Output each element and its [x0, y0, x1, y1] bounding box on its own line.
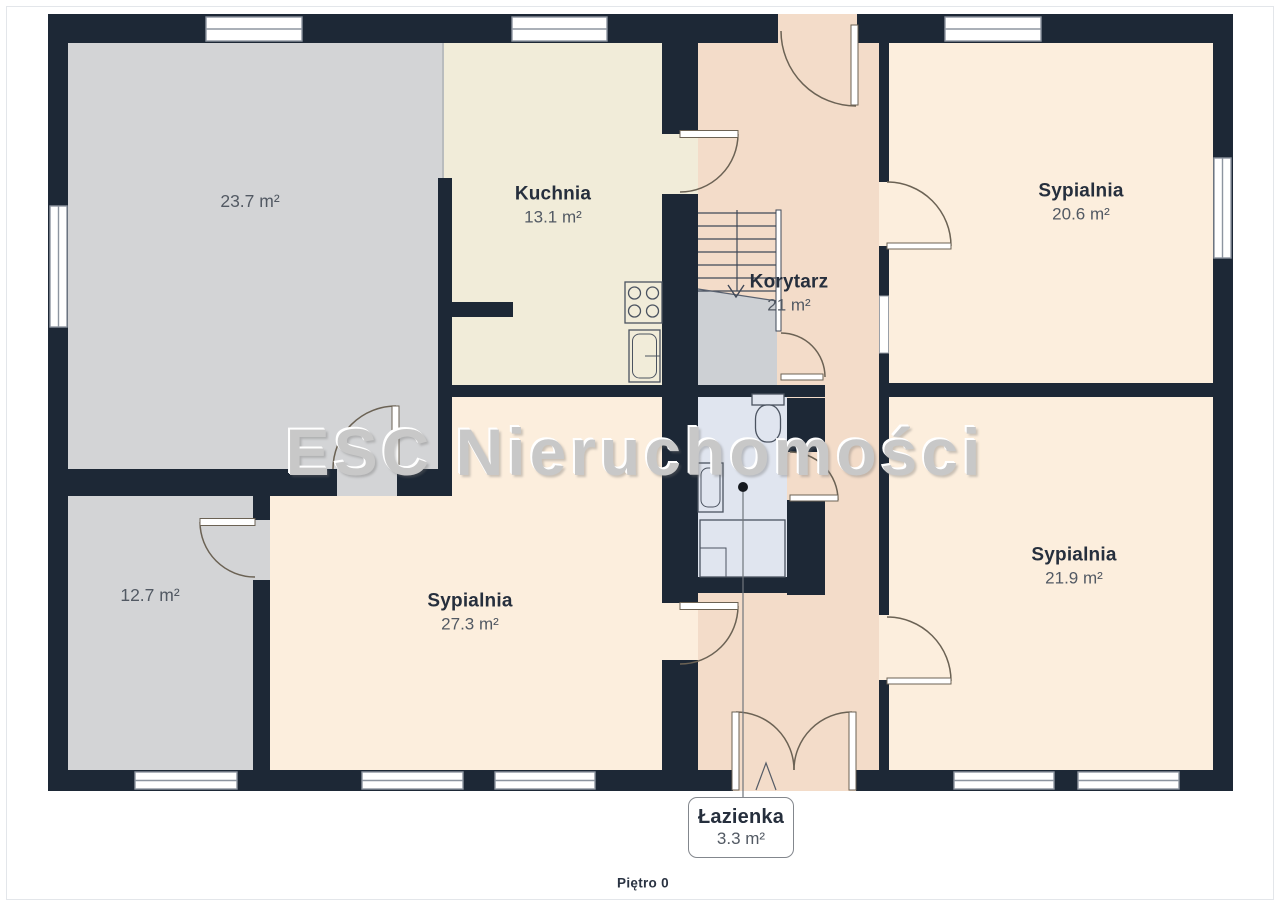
opening-bedroom-tr-door — [879, 182, 889, 246]
room-name: Kuchnia — [515, 183, 591, 207]
wall-corridor-left-1 — [662, 43, 698, 134]
window-icon — [1078, 772, 1179, 789]
opening-bedroom-left-door — [662, 603, 698, 660]
window-icon — [206, 17, 302, 41]
floor-room-gray-small — [68, 496, 253, 770]
floors — [68, 43, 1213, 770]
kitchen-sink-icon — [629, 330, 660, 382]
opening-entry-top — [778, 14, 857, 43]
room-area: 20.6 m² — [1038, 203, 1123, 224]
opening-entry-bottom — [733, 770, 856, 791]
wall-corridor-left-2 — [662, 194, 698, 603]
wall-niche — [880, 296, 889, 353]
window-icon — [945, 17, 1041, 41]
room-area: 23.7 m² — [220, 191, 279, 211]
window-icon — [495, 772, 595, 789]
floor-living-gray — [68, 43, 443, 469]
room-area: 13.1 m² — [515, 206, 591, 227]
room-label-bedroom-left: Sypialnia 27.3 m² — [427, 590, 512, 635]
room-area: 12.7 m² — [120, 585, 179, 605]
room-label-living-gray: 23.7 m² — [220, 191, 279, 213]
floor-label: Piętro 0 — [617, 876, 669, 891]
window-icon — [135, 772, 237, 789]
wall-corridor-left-3 — [662, 660, 698, 770]
window-icon — [512, 17, 607, 41]
wall-corridor-right-1 — [879, 43, 889, 182]
wall-corridor-right-4 — [879, 680, 889, 770]
wall-exterior-right — [1213, 14, 1233, 791]
window-icon — [954, 772, 1054, 789]
room-label-bedroom-bottom-right: Sypialnia 21.9 m² — [1031, 544, 1116, 589]
bathroom-callout: Łazienka 3.3 m² — [688, 797, 794, 858]
room-name: Korytarz — [750, 271, 829, 295]
watermark: ESC Nieruchomości — [286, 414, 985, 490]
room-label-corridor: Korytarz 21 m² — [750, 271, 829, 316]
window-icon — [1214, 158, 1231, 258]
window-icon — [362, 772, 463, 789]
stove-icon — [625, 282, 662, 323]
window-icon — [50, 206, 67, 327]
opening-kitchen-door — [662, 134, 698, 194]
room-label-bedroom-top-right: Sypialnia 20.6 m² — [1038, 180, 1123, 225]
room-area: 3.3 m² — [717, 829, 765, 849]
room-label-gray-small: 12.7 m² — [120, 585, 179, 607]
room-label-kitchen: Kuchnia 13.1 m² — [515, 183, 591, 228]
room-area: 27.3 m² — [427, 613, 512, 634]
room-name: Sypialnia — [1031, 544, 1116, 568]
room-name: Łazienka — [698, 806, 784, 829]
room-area: 21 m² — [750, 294, 829, 315]
wall-corridor-right-2 — [879, 246, 889, 296]
wall-kitchen-stub — [452, 302, 513, 317]
opening-bedroom-br-door — [879, 615, 889, 680]
room-area: 21.9 m² — [1031, 567, 1116, 588]
room-name: Sypialnia — [427, 590, 512, 614]
wall-right-bedrooms-divider — [879, 383, 1213, 397]
opening-small-room-door — [253, 520, 270, 580]
wall-bathroom-bottom — [663, 577, 825, 593]
room-name: Sypialnia — [1038, 180, 1123, 204]
floorplan-page: ESC Nieruchomości 23.7 m² Kuchnia 13.1 m… — [0, 0, 1280, 906]
wall-exterior-left — [48, 14, 68, 791]
